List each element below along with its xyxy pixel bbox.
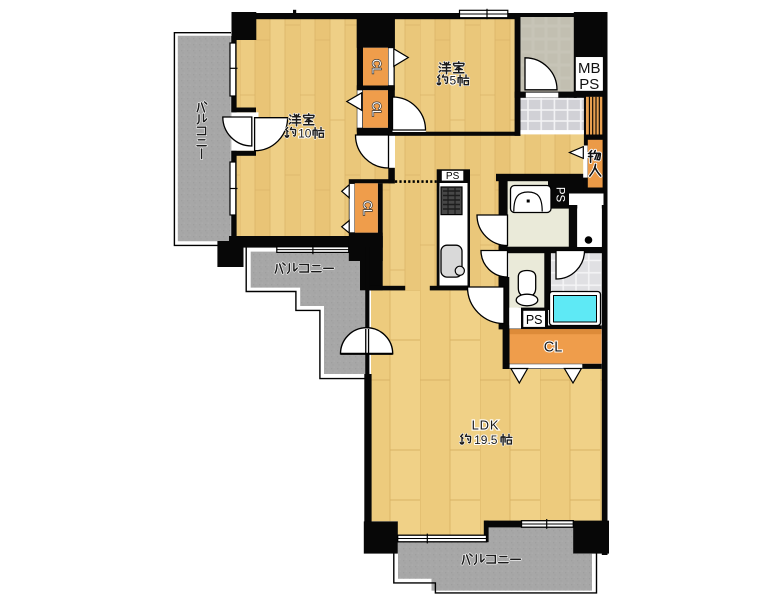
svg-text:5: 5 [449, 73, 456, 87]
svg-text:CL: CL [544, 340, 563, 356]
svg-text:CL: CL [360, 201, 372, 216]
svg-text:PS: PS [446, 171, 460, 182]
svg-text:10: 10 [298, 127, 312, 141]
svg-text:PS: PS [526, 313, 543, 327]
svg-text:PS: PS [553, 187, 565, 203]
svg-text:MB: MB [578, 60, 601, 77]
svg-text:PS: PS [579, 76, 599, 93]
svg-text:CL: CL [369, 59, 381, 74]
svg-text:CL: CL [369, 102, 381, 117]
svg-text:19.5: 19.5 [474, 433, 498, 447]
svg-text:LDK: LDK [472, 418, 500, 433]
